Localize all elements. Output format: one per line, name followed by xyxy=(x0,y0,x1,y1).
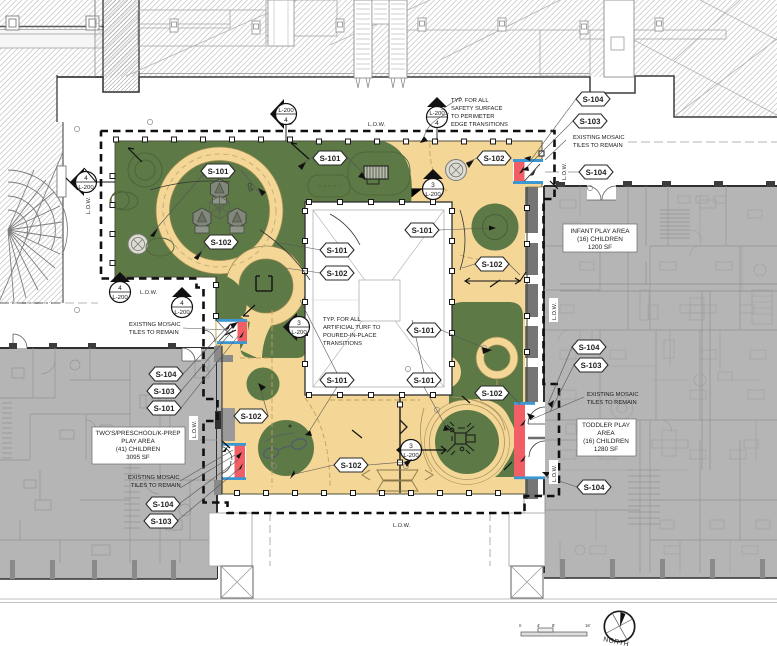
svg-text:S-101: S-101 xyxy=(208,167,229,176)
svg-text:L.O.W.: L.O.W. xyxy=(552,464,558,482)
svg-text:S-102: S-102 xyxy=(211,238,232,247)
svg-text:S-101: S-101 xyxy=(320,154,341,163)
svg-text:S-102: S-102 xyxy=(241,412,262,421)
svg-text:S-104: S-104 xyxy=(584,483,605,492)
svg-text:4: 4 xyxy=(180,300,184,307)
svg-text:4: 4 xyxy=(435,120,439,127)
svg-text:EXISTING MOSAIC: EXISTING MOSAIC xyxy=(129,321,181,328)
svg-text:L.O.W.: L.O.W. xyxy=(562,162,568,180)
svg-text:TODDLER PLAY: TODDLER PLAY xyxy=(582,422,631,429)
svg-text:AREA: AREA xyxy=(597,430,615,437)
svg-text:S-101: S-101 xyxy=(414,326,435,335)
svg-text:ARTIFICIAL TURF TO: ARTIFICIAL TURF TO xyxy=(323,324,381,331)
svg-text:S-104: S-104 xyxy=(586,168,607,177)
svg-text:L-200: L-200 xyxy=(278,107,294,114)
svg-text:S-104: S-104 xyxy=(583,95,604,104)
svg-text:TYP. FOR ALL: TYP. FOR ALL xyxy=(323,316,361,323)
svg-text:S-104: S-104 xyxy=(156,370,177,379)
svg-text:(41) CHILDREN: (41) CHILDREN xyxy=(116,446,160,453)
svg-text:S-101: S-101 xyxy=(414,376,435,385)
svg-text:L-200: L-200 xyxy=(78,184,94,191)
svg-text:S-101: S-101 xyxy=(154,404,175,413)
svg-text:L-200: L-200 xyxy=(425,191,441,198)
svg-text:4: 4 xyxy=(118,285,122,292)
svg-text:3: 3 xyxy=(431,182,435,189)
svg-text:S-102: S-102 xyxy=(484,154,505,163)
svg-text:L-200: L-200 xyxy=(291,329,307,336)
svg-text:SAFETY SURFACE: SAFETY SURFACE xyxy=(451,105,503,112)
svg-text:1280 SF: 1280 SF xyxy=(594,446,618,453)
svg-text:S-102: S-102 xyxy=(482,389,503,398)
svg-text:EXISTING MOSAIC: EXISTING MOSAIC xyxy=(573,134,625,141)
svg-text:3: 3 xyxy=(409,443,413,450)
svg-text:S-101: S-101 xyxy=(412,226,433,235)
svg-text:16': 16' xyxy=(585,623,591,628)
svg-text:EDGE TRANSITIONS: EDGE TRANSITIONS xyxy=(451,121,508,128)
svg-text:S-103: S-103 xyxy=(580,117,601,126)
svg-text:TILES TO REMAIN: TILES TO REMAIN xyxy=(129,329,179,336)
svg-text:(16) CHILDREN: (16) CHILDREN xyxy=(577,236,623,243)
svg-text:S-102: S-102 xyxy=(341,461,362,470)
svg-text:L-200: L-200 xyxy=(174,309,190,316)
svg-text:S-102: S-102 xyxy=(482,260,503,269)
svg-text:TYP. FOR ALL: TYP. FOR ALL xyxy=(451,97,489,104)
svg-text:3095 SF: 3095 SF xyxy=(126,454,150,461)
svg-text:3: 3 xyxy=(297,320,301,327)
svg-text:4: 4 xyxy=(284,117,288,124)
svg-text:EXISTING MOSAIC: EXISTING MOSAIC xyxy=(587,391,639,398)
svg-text:S-103: S-103 xyxy=(151,517,172,526)
svg-text:L.O.W.: L.O.W. xyxy=(192,420,198,438)
svg-text:1200 SF: 1200 SF xyxy=(588,244,612,251)
svg-text:L.O.W.: L.O.W. xyxy=(140,290,158,296)
svg-text:TO PERIMETER: TO PERIMETER xyxy=(451,113,494,120)
svg-text:L.O.W.: L.O.W. xyxy=(393,523,411,529)
svg-text:TILES TO REMAIN: TILES TO REMAIN xyxy=(573,142,623,149)
svg-text:8': 8' xyxy=(552,623,555,628)
svg-text:L-200: L-200 xyxy=(112,294,128,301)
svg-text:INFANT PLAY AREA: INFANT PLAY AREA xyxy=(571,228,631,235)
svg-text:S-102: S-102 xyxy=(327,269,348,278)
svg-text:(16) CHILDREN: (16) CHILDREN xyxy=(583,438,629,445)
svg-text:4': 4' xyxy=(537,623,540,628)
svg-text:EXISTING MOSAIC: EXISTING MOSAIC xyxy=(128,474,180,481)
svg-text:PLAY AREA: PLAY AREA xyxy=(121,438,155,445)
svg-text:L.O.W.: L.O.W. xyxy=(368,122,386,128)
svg-text:S-101: S-101 xyxy=(327,246,348,255)
svg-text:L.O.W.: L.O.W. xyxy=(86,196,92,214)
svg-text:S-101: S-101 xyxy=(327,376,348,385)
svg-text:S-104: S-104 xyxy=(153,500,174,509)
svg-text:TWO'S/PRESCHOOL/K-PREP: TWO'S/PRESCHOOL/K-PREP xyxy=(95,430,180,437)
svg-text:TILES TO REMAIN: TILES TO REMAIN xyxy=(587,399,637,406)
svg-text:S-103: S-103 xyxy=(154,387,175,396)
svg-text:POURED-IN-PLACE: POURED-IN-PLACE xyxy=(323,332,377,339)
svg-text:S-104: S-104 xyxy=(579,343,600,352)
svg-text:4: 4 xyxy=(84,175,88,182)
svg-text:TRANSITIONS: TRANSITIONS xyxy=(323,340,362,347)
svg-text:TILES TO REMAIN: TILES TO REMAIN xyxy=(131,482,181,489)
svg-text:L-200: L-200 xyxy=(403,452,419,459)
svg-text:S-103: S-103 xyxy=(581,361,602,370)
svg-text:L.O.W.: L.O.W. xyxy=(552,302,558,320)
